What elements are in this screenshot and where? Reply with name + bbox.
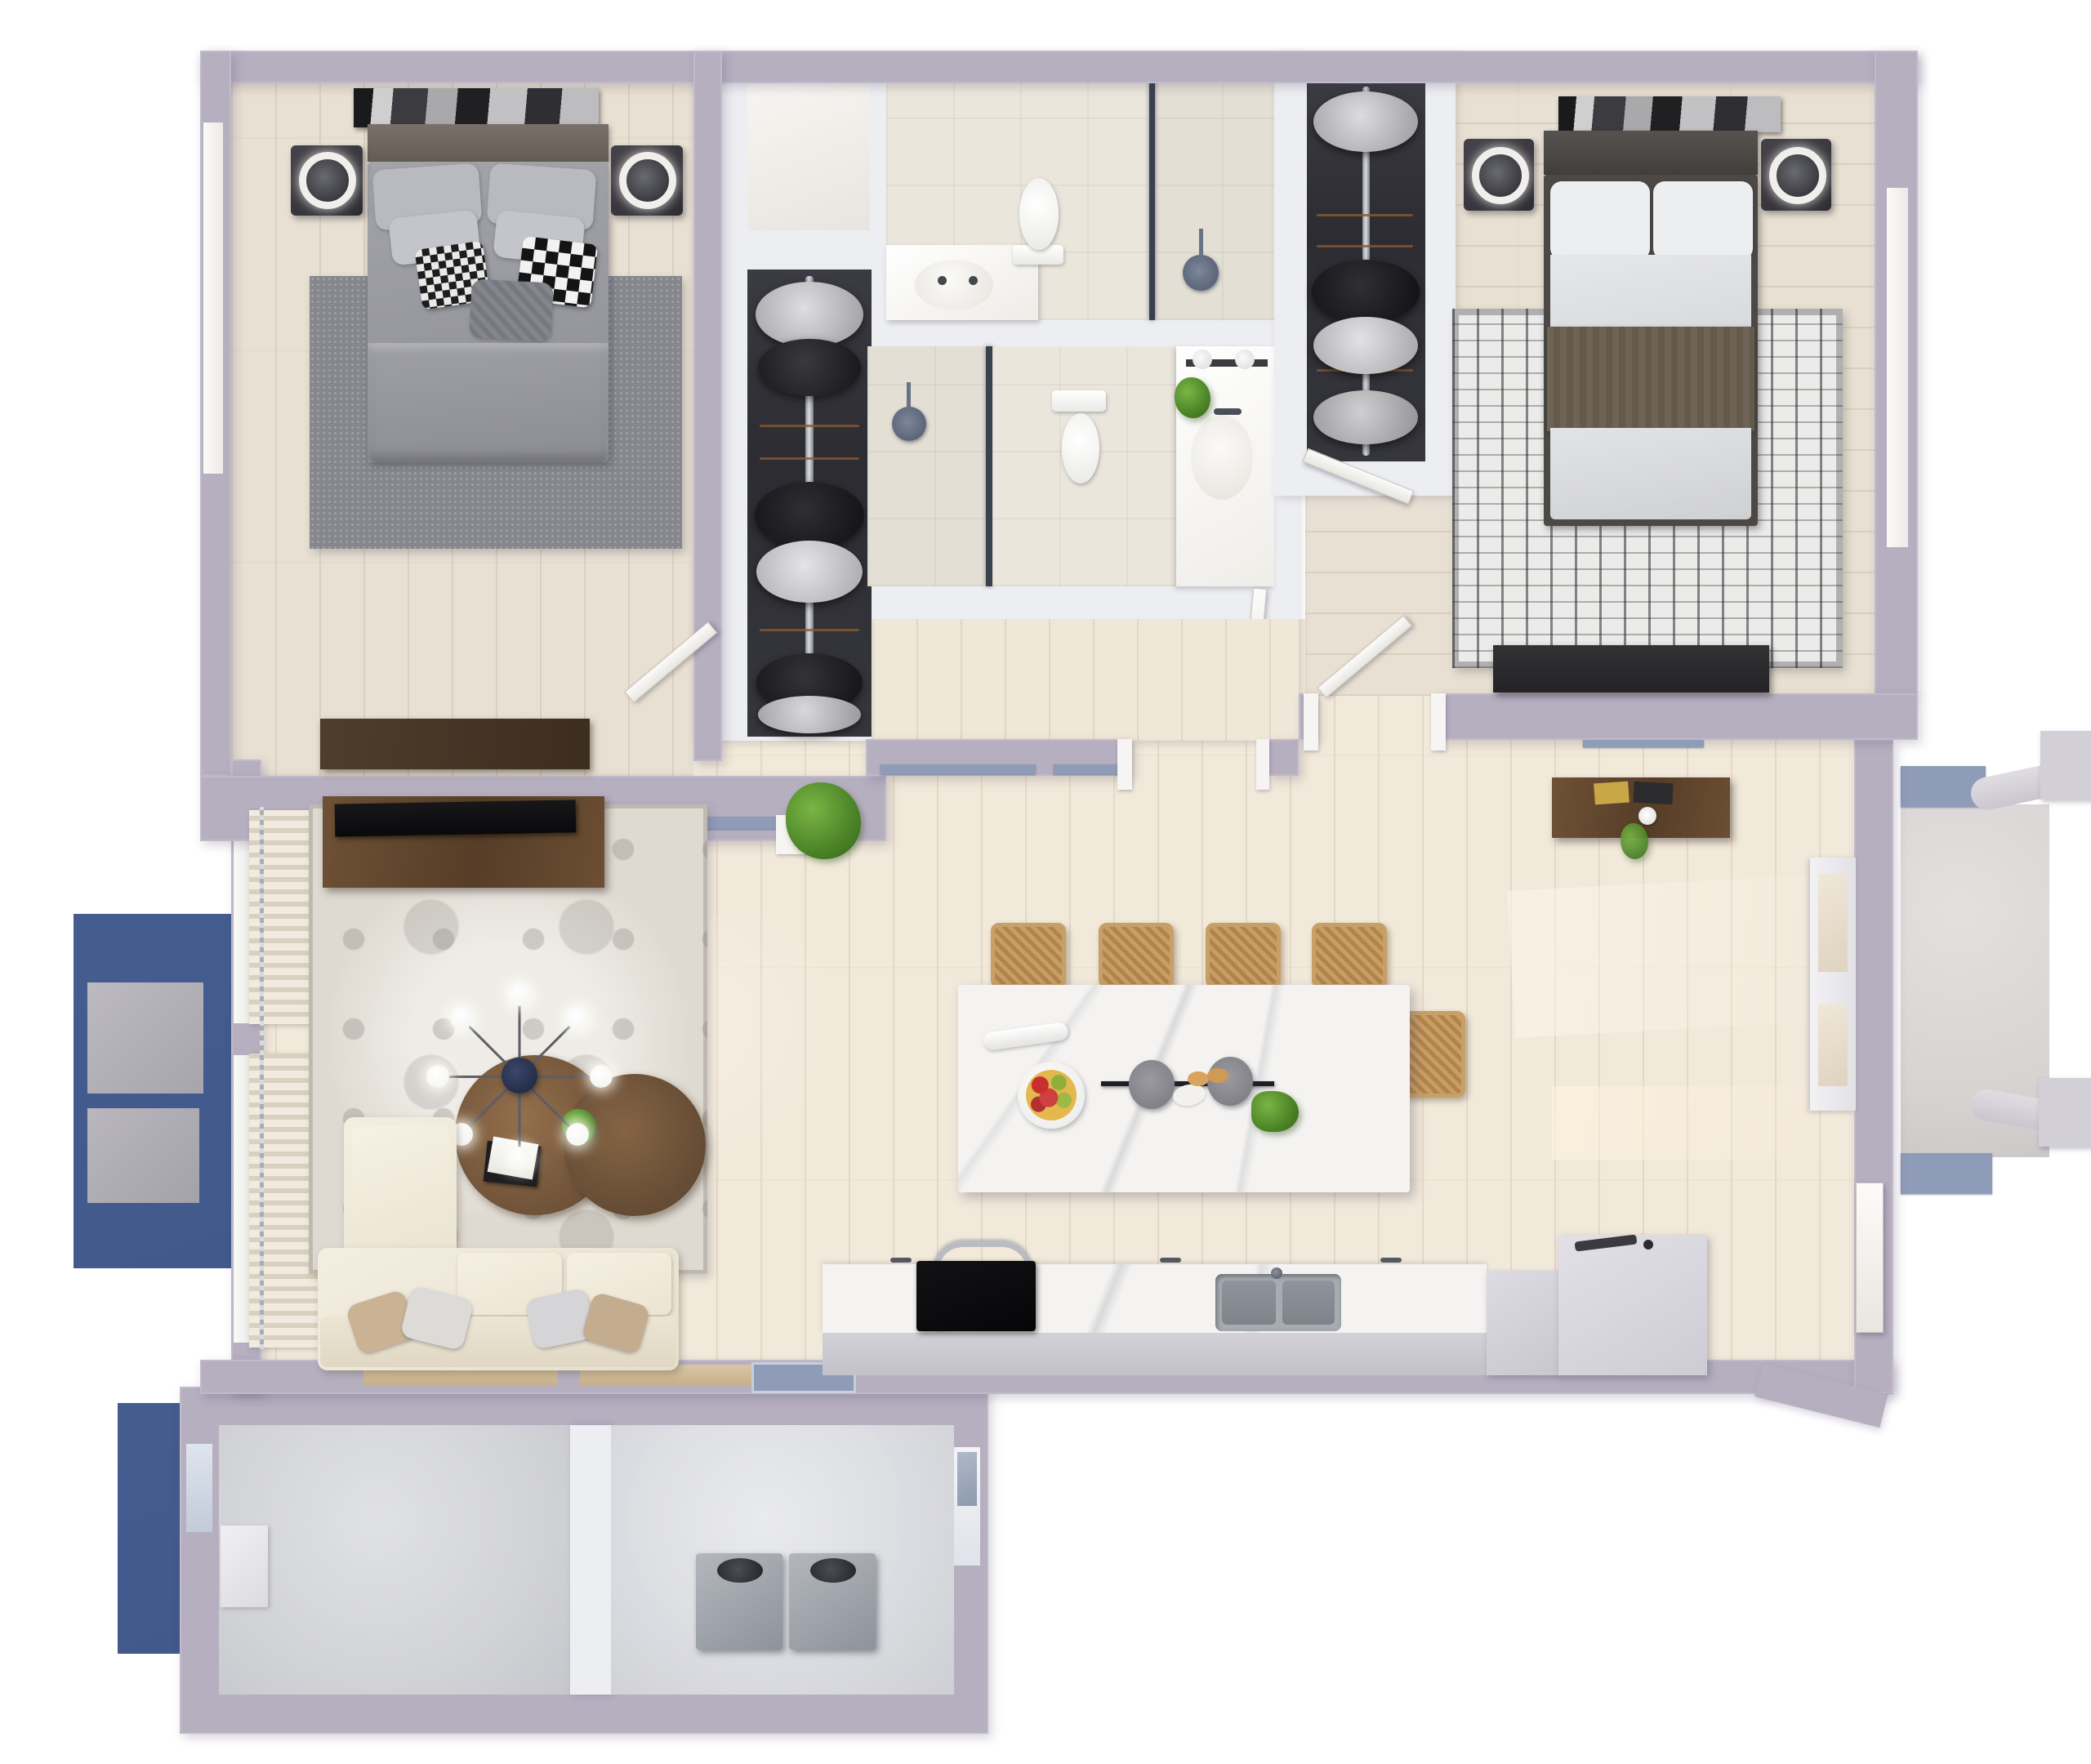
bath1-faucet-dot-1 bbox=[938, 276, 947, 285]
closet2-hanger-2 bbox=[1317, 245, 1413, 247]
bath2-shower-floor bbox=[867, 346, 986, 586]
chandelier-bulb-6 bbox=[450, 1007, 473, 1030]
bed2-headboard bbox=[1544, 131, 1758, 175]
island-greens bbox=[1251, 1091, 1299, 1132]
hall-console-book-1 bbox=[1594, 782, 1630, 805]
kitchen-handle-1 bbox=[890, 1258, 912, 1263]
closet1-clothes-top bbox=[756, 282, 863, 347]
island-bread-2 bbox=[1207, 1068, 1228, 1083]
porch-rail-post-top bbox=[2040, 731, 2091, 800]
porch-rail-post-bottom bbox=[2039, 1078, 2091, 1147]
hall-jamb-left bbox=[1117, 739, 1132, 790]
garage-divider-wall bbox=[570, 1425, 611, 1695]
bath1-shower-arm bbox=[1199, 229, 1203, 260]
bath2-sconce-2 bbox=[1235, 350, 1255, 369]
bedroom1-dresser bbox=[320, 719, 590, 769]
bed1-pillow-lumbar bbox=[469, 278, 554, 341]
chandelier-bulb-2 bbox=[566, 1123, 589, 1146]
bedroom2-ringlamp-left bbox=[1472, 147, 1529, 204]
bath2-shower-glass bbox=[986, 346, 992, 586]
bath2-vanity-plant bbox=[1175, 377, 1210, 418]
bed2-sheet-fold bbox=[1550, 428, 1751, 519]
stool-5 bbox=[1402, 1011, 1465, 1098]
bath1-shower-head bbox=[1183, 255, 1219, 291]
stool-2 bbox=[1099, 923, 1174, 988]
bath1-shower-floor bbox=[1155, 82, 1274, 320]
island-apples bbox=[1026, 1070, 1077, 1120]
island-bread-1 bbox=[1188, 1071, 1209, 1086]
chandelier-hub bbox=[502, 1058, 537, 1094]
wall-south-bedroom2 bbox=[1436, 693, 1918, 740]
hall-plant bbox=[786, 782, 861, 859]
hall-console-plant bbox=[1621, 823, 1648, 859]
closet2-clothes-mid2 bbox=[1313, 317, 1418, 374]
curtain-rod bbox=[260, 807, 264, 1349]
kitchen-handle-3 bbox=[1380, 1258, 1402, 1263]
living-tv bbox=[335, 800, 577, 836]
floor-hall-upper bbox=[872, 619, 1299, 741]
console-wall-sill bbox=[1583, 740, 1704, 747]
chandelier-bulb-5 bbox=[426, 1065, 449, 1088]
deck-planter-1 bbox=[87, 982, 203, 1094]
bedroom2-window bbox=[1887, 188, 1908, 547]
bath2-faucet bbox=[1214, 408, 1242, 415]
kitchen-sink-basin-left bbox=[1222, 1281, 1276, 1325]
kitchen-cooktop bbox=[916, 1261, 1036, 1331]
water-heater-1-lid bbox=[717, 1558, 763, 1583]
bedroom1-window bbox=[203, 122, 223, 474]
bedroom2-jamb-left bbox=[1304, 693, 1318, 751]
storage-wall-box bbox=[221, 1526, 268, 1607]
bedroom2-wall-art bbox=[1558, 96, 1781, 132]
hall-track-1 bbox=[881, 764, 1036, 774]
closet1-hanger-3 bbox=[760, 629, 859, 631]
cabinet-step-low bbox=[1487, 1271, 1560, 1375]
bath2-toilet-tank bbox=[1052, 390, 1106, 412]
bed1-headboard bbox=[368, 124, 609, 162]
right-builtin-panel-1 bbox=[1818, 874, 1848, 972]
hall-console-cup bbox=[1638, 807, 1656, 825]
stool-1 bbox=[991, 923, 1066, 988]
closet1-hanger-1 bbox=[760, 425, 859, 427]
sunlight-patch-1 bbox=[1508, 873, 1858, 1038]
storage-window bbox=[186, 1444, 212, 1532]
floor-plan bbox=[0, 0, 2091, 1764]
right-builtin-panel-2 bbox=[1818, 1004, 1848, 1086]
bedroom1-wall-art bbox=[354, 88, 599, 127]
right-wall-door bbox=[1856, 1183, 1884, 1333]
bath1-sink-bowl bbox=[915, 260, 993, 310]
chandelier-bulb-7 bbox=[508, 983, 531, 1006]
bath1-toilet-bowl bbox=[1019, 178, 1059, 250]
deck-lower bbox=[118, 1403, 183, 1654]
bedroom2-jamb-right bbox=[1431, 693, 1446, 751]
deck-planter-2 bbox=[87, 1108, 199, 1203]
closet1-clothes-bottom2 bbox=[758, 696, 861, 733]
wall-south-bath-right bbox=[1268, 739, 1299, 776]
bedroom2-dresser bbox=[1493, 645, 1769, 693]
bath1-shower-glass bbox=[1149, 82, 1155, 320]
closet1-hanger-2 bbox=[760, 457, 859, 460]
closet2-hanger-1 bbox=[1317, 214, 1413, 216]
water-heater-2-lid bbox=[810, 1558, 856, 1583]
bath2-sconce-1 bbox=[1193, 350, 1212, 369]
bed2-throw-blanket bbox=[1547, 327, 1754, 431]
bath2-sink-bowl bbox=[1191, 415, 1253, 500]
closet2-clothes-bottom bbox=[1313, 390, 1418, 444]
hall-jamb-right bbox=[1256, 739, 1269, 790]
bed2-pillow-2 bbox=[1653, 181, 1753, 260]
kitchen-cabinet-face bbox=[823, 1333, 1487, 1375]
cabinet-tall bbox=[1558, 1235, 1707, 1375]
island-pendant-shade-1 bbox=[1129, 1060, 1175, 1109]
bedroom2-ringlamp-right bbox=[1769, 147, 1826, 204]
porch-step-bottom bbox=[1901, 1153, 1992, 1194]
closet1-clothes-mid bbox=[755, 482, 864, 549]
hall-console-book-2 bbox=[1633, 782, 1673, 804]
stool-3 bbox=[1206, 923, 1281, 988]
bedroom1-ringlamp-right bbox=[619, 152, 676, 209]
chandelier-bulb-3 bbox=[508, 1147, 531, 1169]
kitchen-handle-2 bbox=[1160, 1258, 1181, 1263]
sunlight-patch-2 bbox=[1552, 1086, 1854, 1160]
bedroom1-ringlamp-left bbox=[299, 152, 356, 209]
wall-top bbox=[200, 51, 1918, 83]
utility-floor bbox=[611, 1425, 954, 1695]
closet1-clothes-top2 bbox=[758, 339, 861, 396]
bath2-shower-arm bbox=[907, 382, 911, 410]
closet1-clothes-mid2 bbox=[756, 541, 863, 603]
chandelier-bulb-1 bbox=[590, 1065, 613, 1088]
linen-closet-floor bbox=[747, 82, 870, 230]
cabinet-utensil-dot bbox=[1643, 1240, 1653, 1249]
kitchen-faucet bbox=[1271, 1267, 1282, 1279]
stool-4 bbox=[1312, 923, 1387, 988]
hall-track-2 bbox=[1054, 764, 1121, 774]
bath2-toilet-bowl bbox=[1062, 413, 1099, 483]
storage-floor bbox=[219, 1425, 570, 1695]
closet2-clothes-mid bbox=[1312, 260, 1420, 323]
closet2-clothes-top bbox=[1313, 91, 1418, 152]
bath2-shower-head bbox=[892, 407, 926, 441]
bed2-sheet bbox=[1550, 255, 1751, 333]
kitchen-sink-basin-right bbox=[1282, 1281, 1335, 1325]
coffee-table-small bbox=[564, 1074, 706, 1216]
chandelier-bulb-8 bbox=[566, 1007, 589, 1030]
bed2-pillow-1 bbox=[1550, 181, 1650, 260]
bath1-faucet-dot-2 bbox=[969, 276, 978, 285]
bed1-duvet-fold bbox=[368, 343, 609, 462]
utility-window-pane bbox=[957, 1452, 977, 1506]
wall-bedroom1-closet bbox=[693, 51, 722, 761]
